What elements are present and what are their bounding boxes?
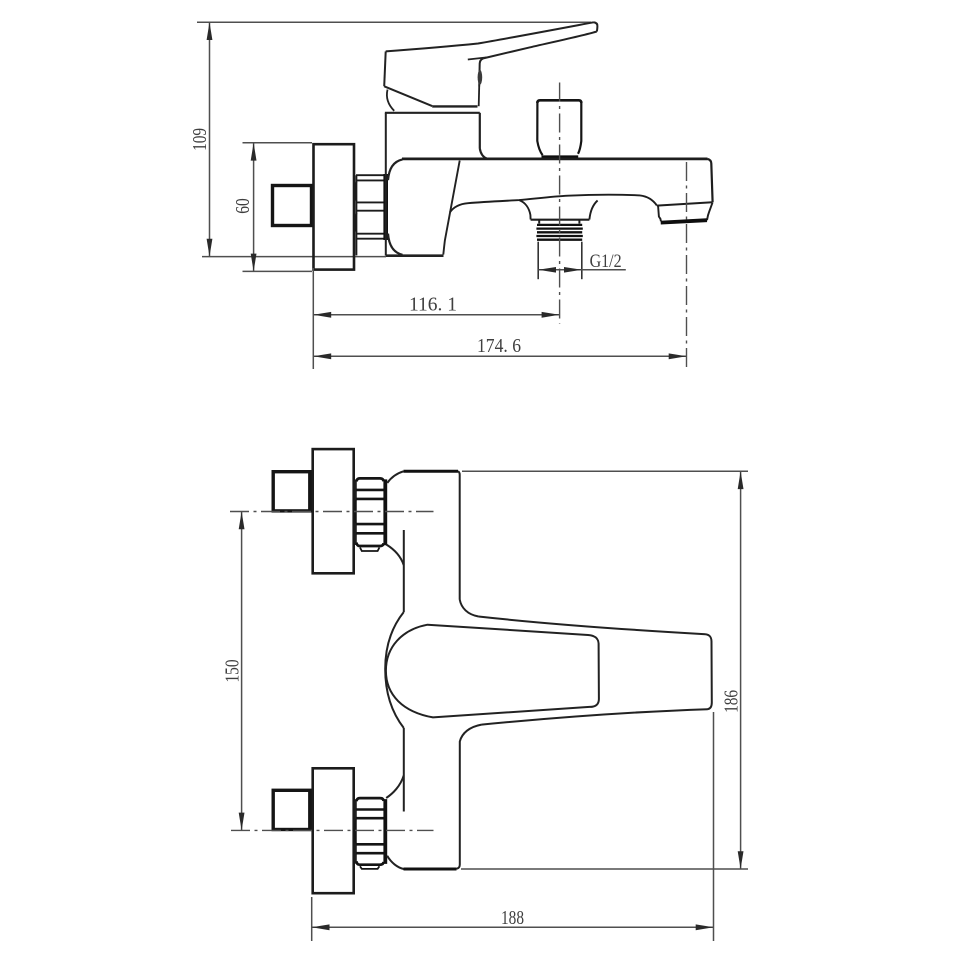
svg-text:60: 60 <box>233 198 254 214</box>
svg-text:150: 150 <box>223 660 244 683</box>
svg-text:116. 1: 116. 1 <box>409 294 457 315</box>
svg-text:186: 186 <box>721 690 742 713</box>
svg-text:174. 6: 174. 6 <box>477 336 521 357</box>
svg-text:G1/2: G1/2 <box>590 251 622 272</box>
svg-text:188: 188 <box>501 908 524 929</box>
svg-text:109: 109 <box>190 128 211 151</box>
